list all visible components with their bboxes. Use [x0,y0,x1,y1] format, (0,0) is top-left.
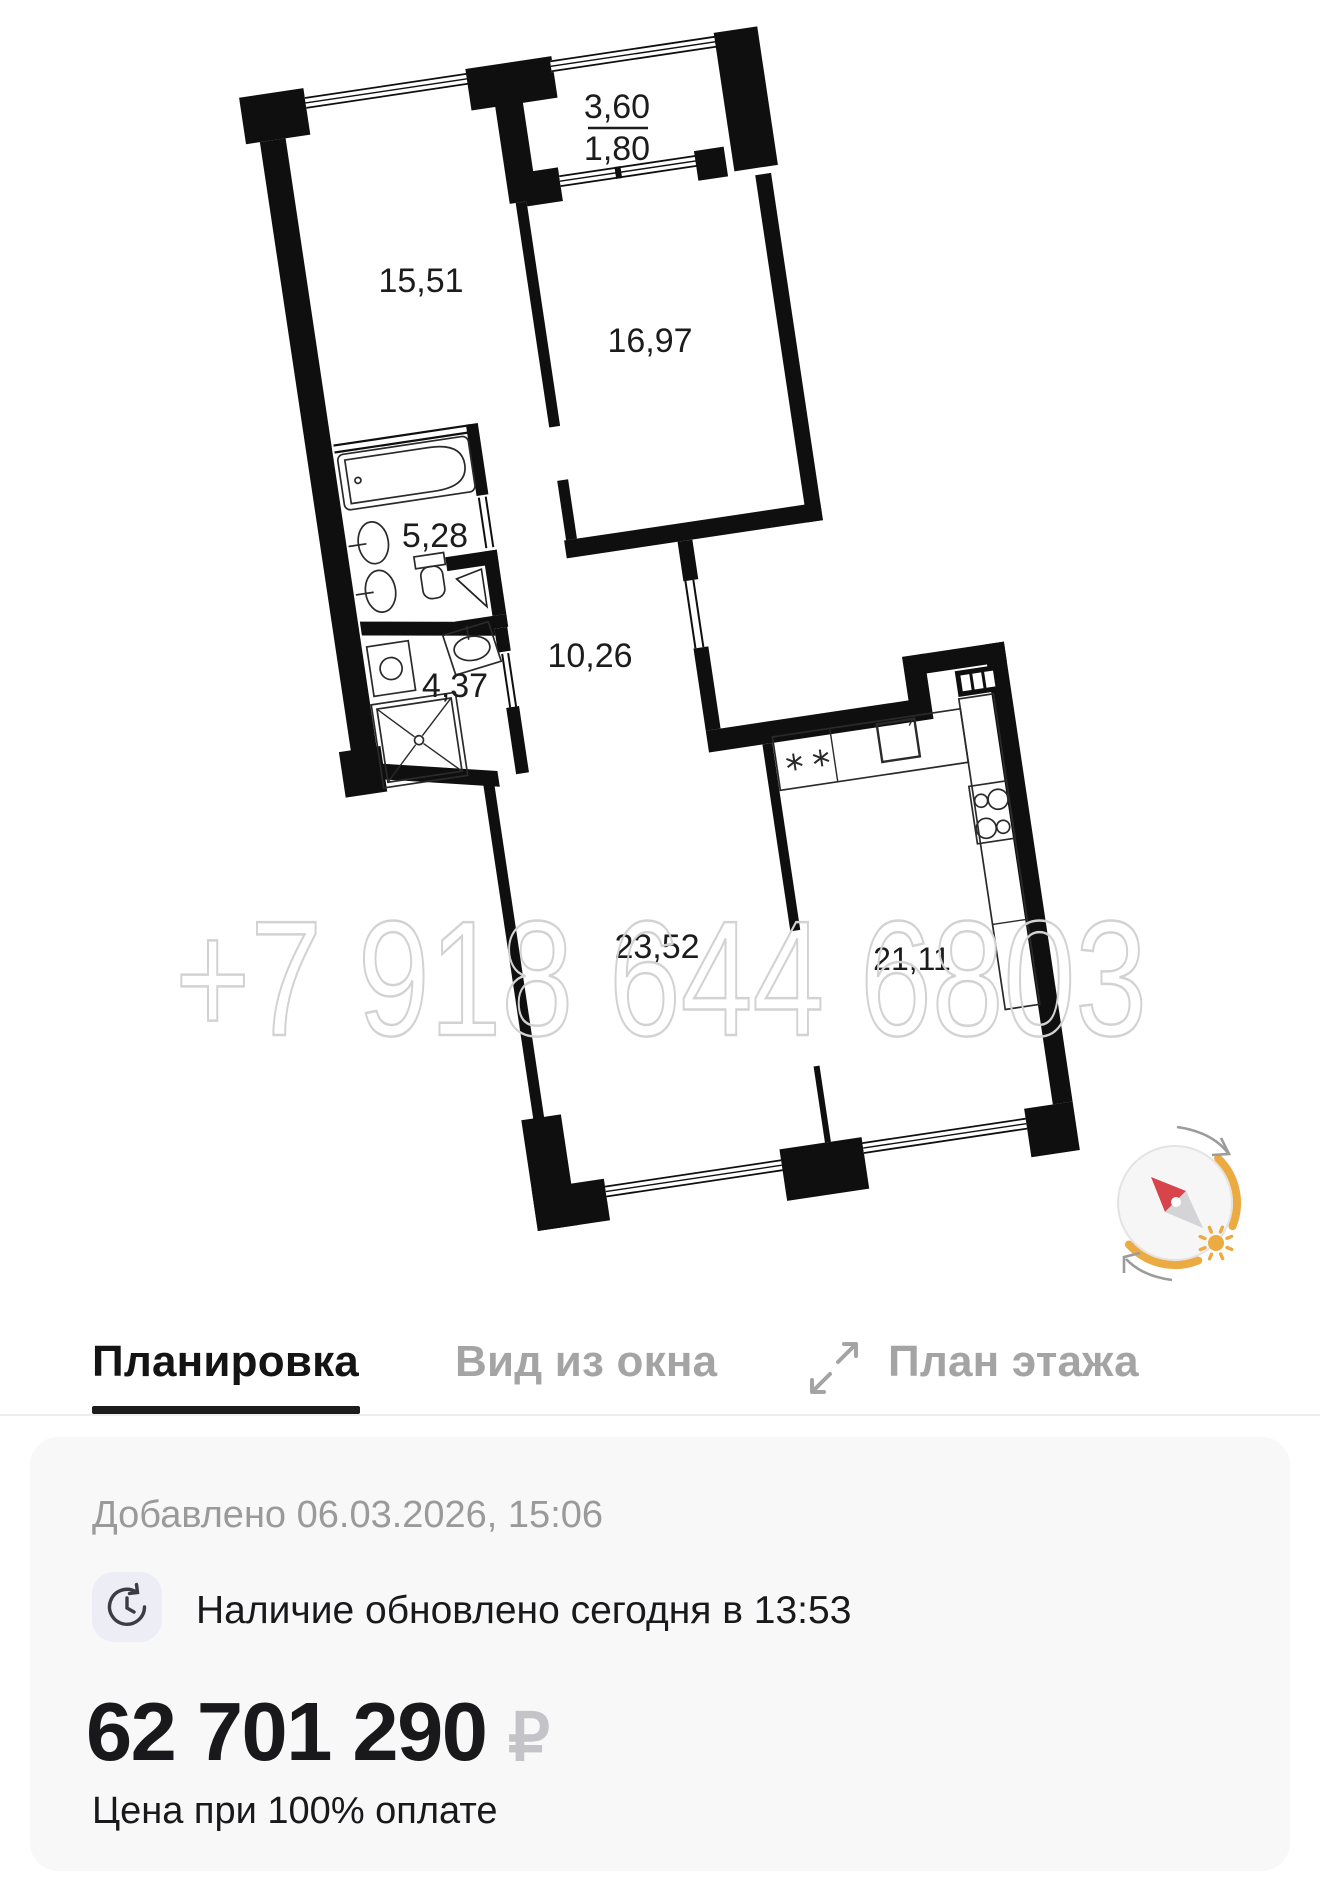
svg-text:16,97: 16,97 [607,322,692,360]
svg-text:5,28: 5,28 [402,517,468,555]
svg-text:15,51: 15,51 [378,262,463,300]
svg-text:+7 918 644 6803: +7 918 644 6803 [175,887,1147,1070]
svg-text:10,26: 10,26 [547,637,632,675]
svg-text:3,60: 3,60 [584,88,650,126]
svg-text:4,37: 4,37 [422,667,488,705]
svg-text:1,80: 1,80 [584,130,650,168]
